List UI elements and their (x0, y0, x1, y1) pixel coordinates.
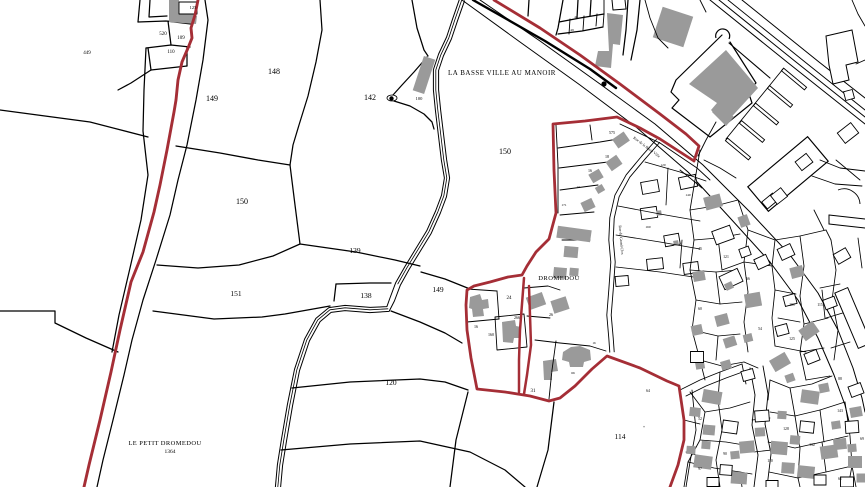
svg-text:575: 575 (609, 130, 615, 135)
svg-text:LE PETIT DROMEDOU: LE PETIT DROMEDOU (128, 440, 201, 447)
svg-text:45: 45 (698, 247, 702, 251)
svg-text:120: 120 (660, 163, 666, 167)
svg-text:31: 31 (531, 389, 537, 394)
svg-text:142: 142 (364, 93, 376, 102)
svg-text:16: 16 (592, 341, 596, 345)
svg-text:266: 266 (514, 315, 520, 320)
svg-text:150: 150 (236, 197, 248, 206)
svg-text:17: 17 (576, 185, 580, 189)
svg-text:128: 128 (783, 427, 789, 431)
svg-text:520: 520 (159, 32, 167, 37)
svg-text:160: 160 (488, 332, 494, 337)
svg-text:140: 140 (685, 193, 691, 197)
svg-text:54: 54 (758, 327, 762, 331)
svg-text:120: 120 (385, 378, 397, 387)
svg-text:125: 125 (789, 337, 795, 341)
svg-text:151: 151 (230, 289, 242, 298)
svg-text:100: 100 (416, 96, 424, 101)
svg-text:125: 125 (190, 5, 198, 10)
svg-text:64: 64 (646, 389, 650, 393)
svg-text:109: 109 (177, 36, 185, 41)
svg-text:449: 449 (83, 51, 91, 56)
svg-text:60: 60 (698, 307, 702, 311)
svg-text:110: 110 (167, 50, 175, 55)
svg-text:121: 121 (723, 255, 729, 259)
svg-text:24: 24 (507, 296, 513, 301)
svg-text:DROMEDOU: DROMEDOU (538, 275, 580, 282)
svg-text:26: 26 (549, 312, 553, 317)
svg-text:90: 90 (723, 452, 727, 456)
svg-text:16: 16 (474, 324, 478, 329)
svg-text:69: 69 (860, 437, 864, 441)
svg-text:148: 148 (268, 67, 280, 76)
svg-text:66: 66 (571, 371, 575, 375)
svg-text:160: 160 (645, 225, 651, 229)
svg-text:115: 115 (817, 303, 823, 307)
svg-text:171: 171 (561, 203, 567, 207)
svg-text:52: 52 (698, 417, 702, 421)
svg-text:132: 132 (809, 443, 815, 447)
svg-text:61: 61 (838, 477, 842, 481)
svg-text:16: 16 (588, 168, 592, 173)
svg-text:114: 114 (615, 432, 626, 441)
svg-text:110: 110 (767, 459, 773, 463)
svg-text:48: 48 (574, 15, 578, 19)
svg-text:143: 143 (837, 409, 843, 413)
svg-text:101: 101 (789, 303, 795, 307)
svg-text:1364: 1364 (165, 449, 176, 455)
svg-text:139: 139 (349, 246, 361, 255)
svg-text:18: 18 (605, 154, 609, 159)
svg-text:97: 97 (698, 467, 702, 471)
svg-text:150: 150 (499, 147, 511, 156)
svg-text:149: 149 (432, 285, 444, 294)
svg-text:LA BASSE VILLE AU MANOIR: LA BASSE VILLE AU MANOIR (448, 69, 556, 77)
svg-text:49: 49 (570, 28, 574, 32)
svg-text:66: 66 (746, 277, 750, 281)
svg-text:88: 88 (838, 377, 842, 381)
svg-text:138: 138 (360, 291, 372, 300)
svg-text:149: 149 (206, 94, 218, 103)
